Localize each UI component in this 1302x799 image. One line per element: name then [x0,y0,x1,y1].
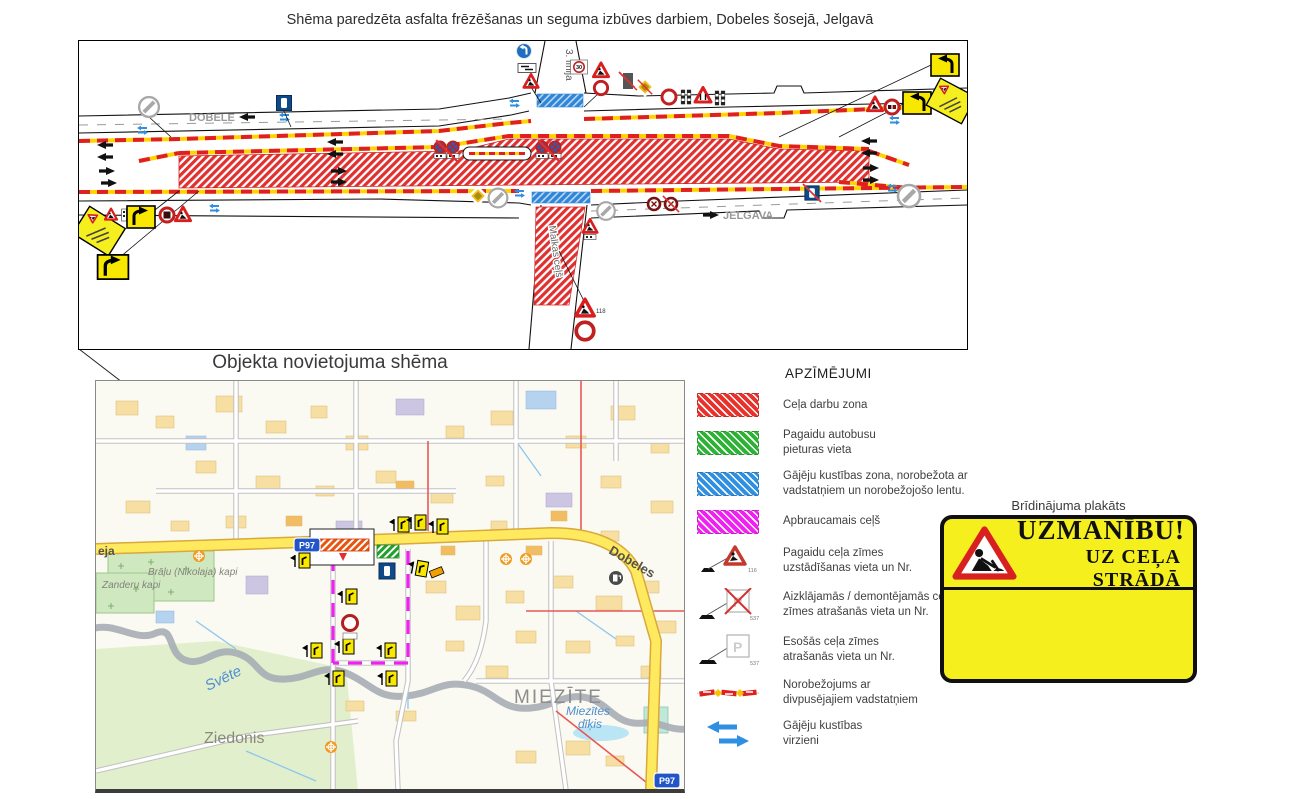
legend-row-pedestrian-zone: Gājēju kustības zona, norobežota ar vads… [697,469,1002,499]
map-bus-stop-sign [379,563,395,579]
barrier-icon [697,682,759,704]
svg-text:537: 537 [750,616,759,622]
warning-poster-mini [79,206,125,255]
svg-text:116: 116 [748,568,757,574]
svg-text:P: P [733,639,742,655]
legend-row-bus-stop: Pagaidu autobusu pieturas vieta [697,428,1002,458]
covered-sign-icon [619,72,637,90]
prohibition-ring-icon [594,81,607,94]
route-shield-p97: P97 [294,538,320,552]
bus-stop-swatch [697,431,759,455]
pedestrian-zone-south [532,192,590,203]
traffic-scheme-panel: DOBELE JELGAVA 3. līnija Malkas ceļš 30 [78,40,968,350]
distance-plate-icon [122,209,127,221]
temporary-sign-icon: 116 [697,545,759,577]
distance-plate-icon [584,235,596,240]
priority-road-sign-crossed-icon [637,79,654,96]
poster-line2: UZ CEĻA STRĀDĀ [1017,546,1185,592]
label-ziedonis: Ziedonis [204,730,264,747]
speed-limit-plate: 30 [571,60,588,74]
prohibition-ring-icon [576,322,594,340]
label-road-partial: eja [98,544,115,558]
warning-poster: UZMANĪBU! UZ CEĻA STRĀDĀ [940,515,1197,683]
legend-row-work-zone: Ceļa darbu zona [697,393,1002,417]
no-stopping-dark-sign-icon [648,198,660,210]
label-jelgava: JELGAVA [723,210,773,222]
warning-poster-mini [926,78,967,124]
bus-stop-sign-icon [277,96,292,111]
map-work-zone-segment [315,539,369,551]
roadworks-triangle-118: 118 [576,299,606,316]
striped-delineator-icon [715,91,719,105]
pedestrian-directions-icon [697,721,759,747]
page-title: Shēma paredzēta asfalta frēzēšanas un se… [0,12,1160,28]
warning-triangle-icon [593,63,608,77]
label-dobele: DOBELE [189,112,235,124]
label-pond-1: Miezītes [566,704,610,718]
warning-triangle-icon [867,97,882,111]
label-cemetery1: Brāļu (Nikolaja) kapi [148,567,238,578]
two-way-plate-icon [518,64,536,73]
covered-sign-icon: P 537 [697,588,759,622]
speed-limit-value: 30 [576,65,582,71]
map-no-entry-sign [343,616,358,640]
poster-line1: UZMANĪBU! [1017,515,1185,546]
striped-delineator-icon [721,91,725,105]
roadworks-triangle-icon [952,523,1017,583]
label-pond-2: dīķis [578,717,602,731]
narrow-road-triangle-icon [695,88,711,103]
no-entry-ring-icon [160,208,174,222]
bus-stop-sign-crossed-icon [803,184,821,202]
no-overtaking-ring-icon [885,100,899,114]
work-zone-swatch [697,393,759,417]
no-stopping-dark-sign-crossed-icon [663,196,679,212]
existing-sign-icon: P 537 [697,633,759,667]
lane-shift-board-icon [98,255,129,279]
existing-sign-crossed-icon [489,189,508,208]
legend-row-pedestrian-directions: Gājēju kustības virzieni [697,719,1002,749]
mandatory-turn-sign-icon [517,44,532,59]
detour-swatch [697,510,759,534]
prohibition-ring-icon [662,90,676,104]
poster-top-section: UZMANĪBU! UZ CEĻA STRĀDĀ [944,519,1193,590]
poster-title: Brīdinājuma plakāts [940,498,1197,513]
roadworks-triangle-icon [524,74,538,87]
svg-text:537: 537 [750,661,759,667]
label-cemetery2: Zanderu kapi [101,580,161,591]
location-map-panel: P97 P97 Brāļu (Nikolaja) kapi Zanderu ka… [95,380,685,793]
existing-sign-crossed-icon [597,202,615,220]
traffic-island [463,147,531,160]
roadworks-triangle-icon [105,209,117,220]
svg-text:118: 118 [596,309,606,315]
striped-delineator-icon [681,90,685,104]
pedestrian-zone-swatch [697,472,759,496]
existing-sign-crossed-icon [139,97,159,117]
map-bus-stop-segment [377,545,399,558]
map-title: Objekta novietojuma shēma [150,352,510,374]
pedestrian-zone-north [537,94,583,107]
work-zone-main [179,139,869,188]
lane-shift-board-icon [127,206,155,228]
lane-shift-board-icon [931,54,959,76]
svg-text:P97: P97 [299,541,315,551]
existing-sign-crossed-icon [898,185,920,207]
route-shield-p97-corner: P97 [654,773,680,788]
legend-title: APZĪMĒJUMI [785,366,1002,381]
striped-delineator-icon [687,90,691,104]
svg-text:P97: P97 [659,776,675,786]
